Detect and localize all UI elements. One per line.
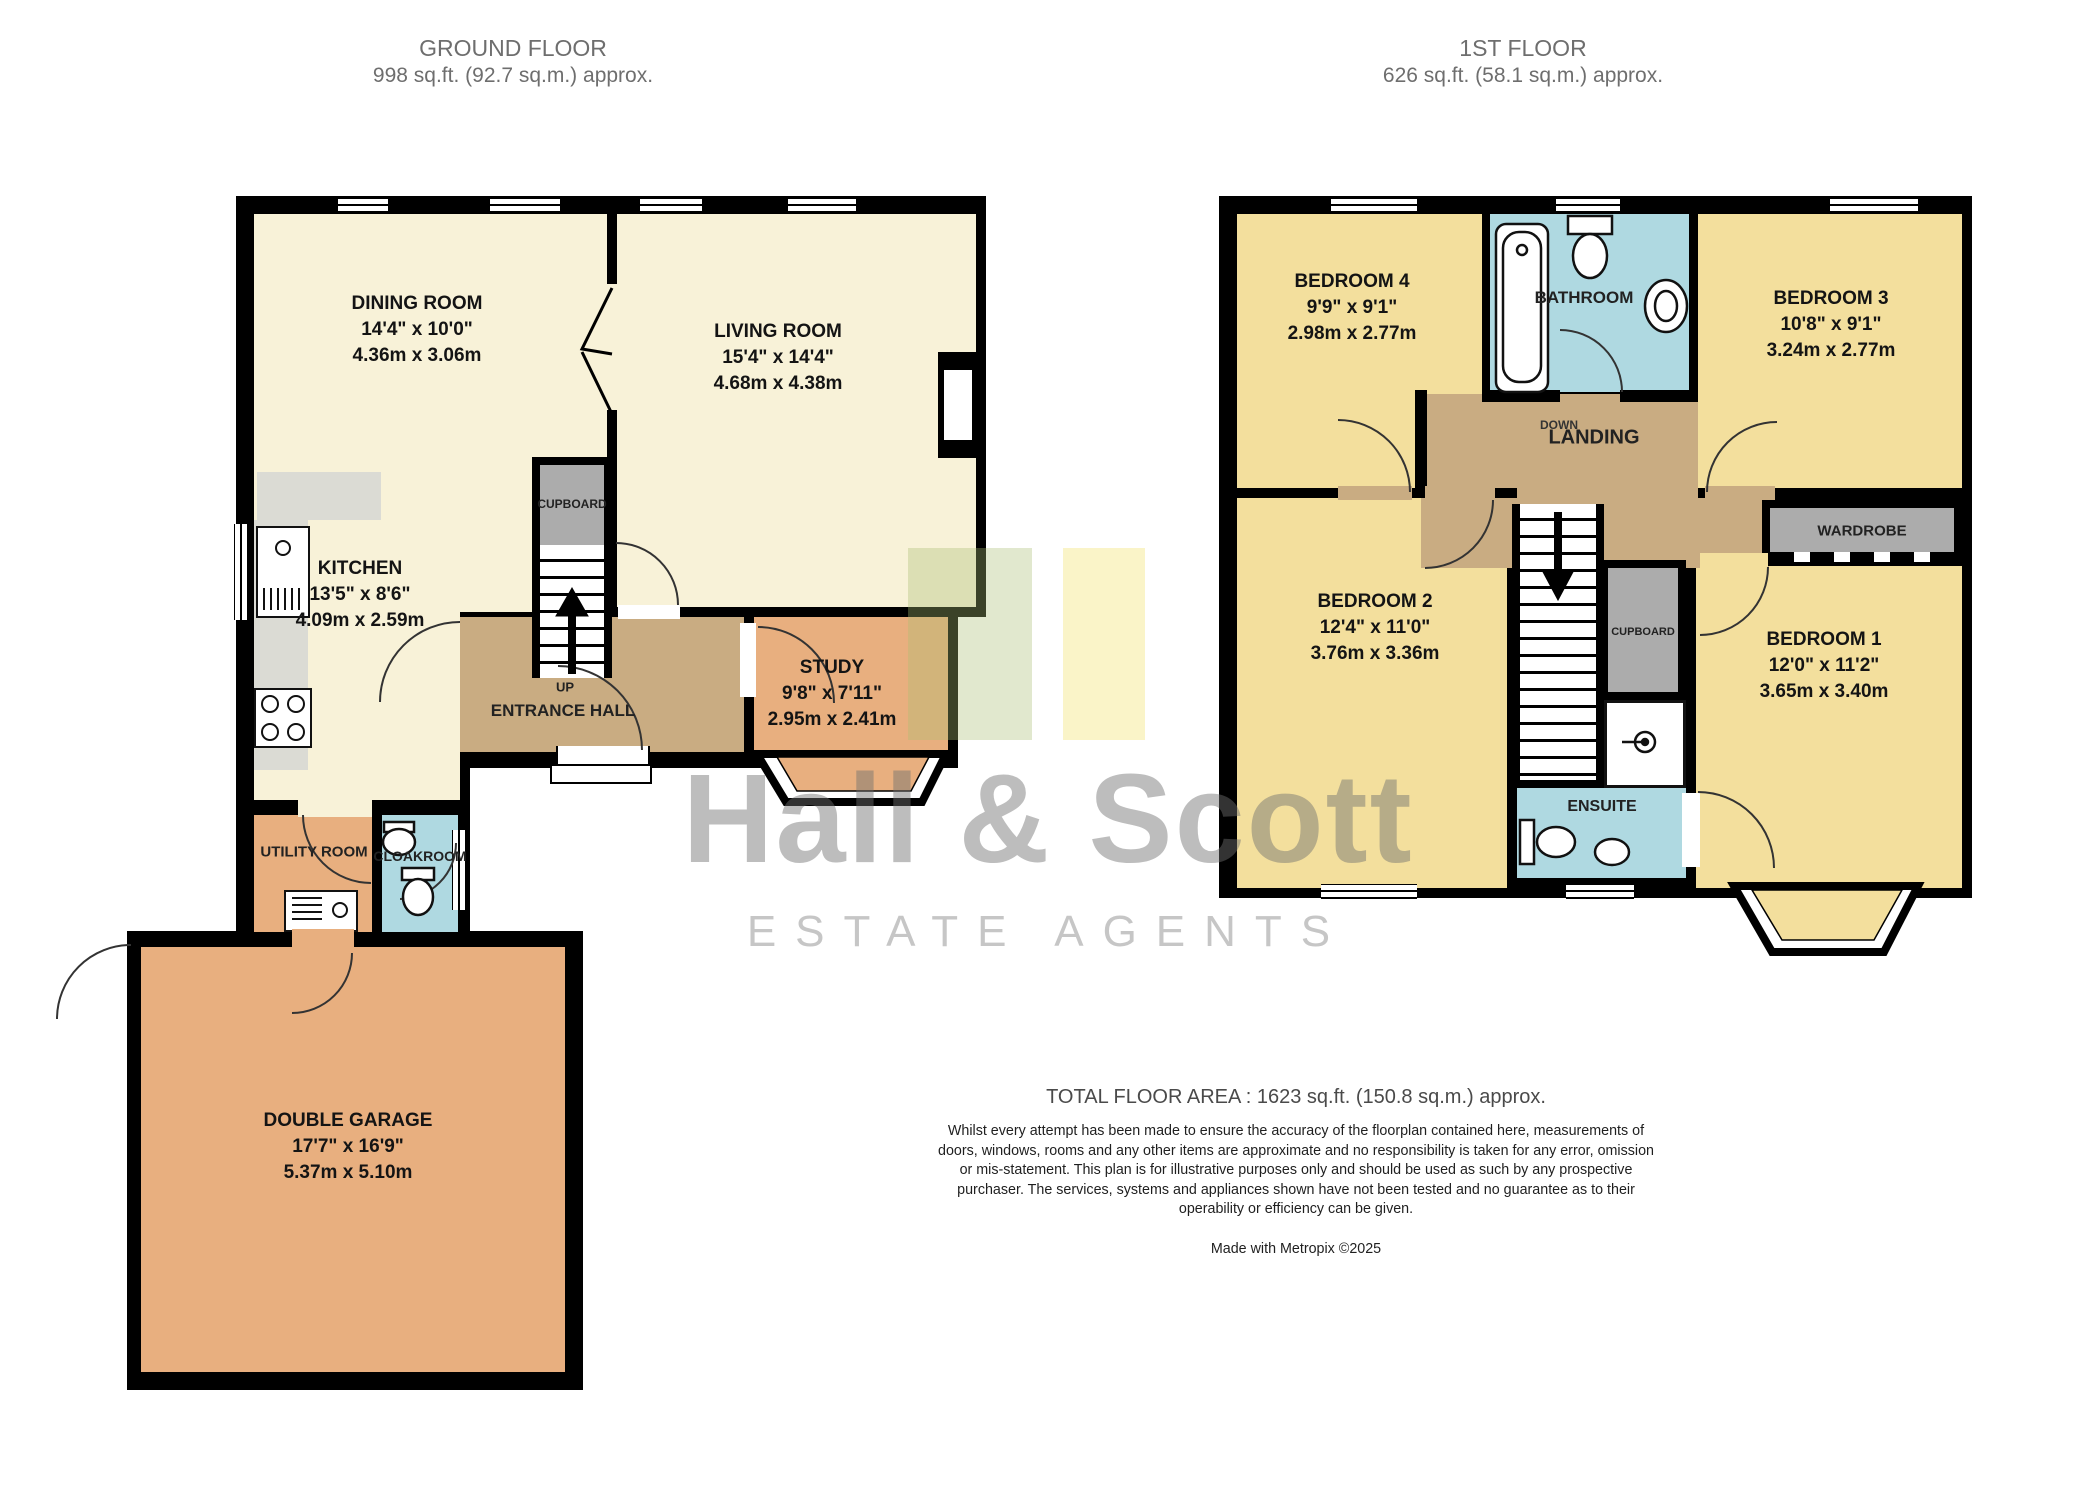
living-window-1 xyxy=(640,198,702,213)
bedroom-1 xyxy=(1696,565,1962,888)
ensuite-door-gap xyxy=(1682,793,1700,867)
garage-label: DOUBLE GARAGE 17'7" x 16'9" 5.37m x 5.10… xyxy=(264,1108,433,1186)
dining-window-1 xyxy=(338,198,388,213)
first-floor-header: 1ST FLOOR 626 sq.ft. (58.1 sq.m.) approx… xyxy=(1323,33,1723,89)
bathroom-wall-right xyxy=(1620,390,1698,402)
bed3-window xyxy=(1830,198,1918,213)
ground-floor-area: 998 sq.ft. (92.7 sq.m.) approx. xyxy=(313,63,713,89)
floorplan-page: { "colors": { "wall": "#000000", "recept… xyxy=(0,0,2095,1500)
living-window-2 xyxy=(788,198,856,213)
ground-floor-header: GROUND FLOOR 998 sq.ft. (92.7 sq.m.) app… xyxy=(313,33,713,89)
utility-worktop xyxy=(284,890,358,932)
utility-door-gap xyxy=(298,798,372,817)
shower xyxy=(1604,700,1686,788)
bathroom-label: BATHROOM xyxy=(1535,288,1634,308)
yellow-highlight-patch xyxy=(1063,548,1145,740)
bedroom4-label: BEDROOM 4 9'9" x 9'1" 2.98m x 2.77m xyxy=(1288,269,1417,347)
entrance-hall-label: ENTRANCE HALL xyxy=(491,701,636,721)
bedroom1-label: BEDROOM 1 12'0" x 11'2" 3.65m x 3.40m xyxy=(1760,627,1889,705)
living-room-label: LIVING ROOM 15'4" x 14'4" 4.68m x 4.38m xyxy=(714,319,843,397)
garage-outer-door-arc xyxy=(57,945,131,1019)
wardrobe-sliding-doors xyxy=(1770,552,1954,562)
bathroom-window xyxy=(1556,198,1620,213)
bed2-door-gap xyxy=(1425,486,1495,500)
ff-staircase xyxy=(1512,504,1604,788)
living-door-gap xyxy=(618,605,680,619)
green-highlight-patch xyxy=(908,548,1032,740)
bed4-door-gap xyxy=(1338,486,1412,500)
bed4-window xyxy=(1331,198,1417,213)
bed3-door-gap xyxy=(1705,486,1775,500)
kitchen-hob xyxy=(254,688,312,748)
cloakroom-window xyxy=(452,830,467,910)
first-floor-area: 626 sq.ft. (58.1 sq.m.) approx. xyxy=(1323,63,1723,89)
bed1-door-gap xyxy=(1700,553,1768,569)
ground-floor-title: GROUND FLOOR xyxy=(313,33,713,63)
study-door-gap xyxy=(740,623,756,697)
kitchen-label: KITCHEN 13'5" x 8'6" 4.09m x 2.59m xyxy=(296,556,425,634)
up-label: UP xyxy=(556,680,574,695)
bed2-wall-seg xyxy=(1495,488,1517,498)
fireplace-opening xyxy=(944,370,972,440)
utility-label: UTILITY ROOM xyxy=(260,844,367,861)
cloakroom-label: CLOAKROOM xyxy=(373,848,466,864)
kitchen-counter-top xyxy=(257,472,381,520)
total-floor-area: TOTAL FLOOR AREA : 1623 sq.ft. (150.8 sq… xyxy=(946,1086,1646,1109)
kitchen-window xyxy=(234,524,249,620)
ff-cupboard-label: CUPBOARD xyxy=(1611,626,1675,638)
watermark-brand: Hall & Scott xyxy=(548,756,1548,882)
landing-wall-jog xyxy=(1415,390,1427,498)
wardrobe-label: WARDROBE xyxy=(1817,523,1906,540)
gf-staircase xyxy=(532,545,612,678)
garage-door-gap xyxy=(292,929,354,953)
bedroom2-label: BEDROOM 2 12'4" x 11'0" 3.76m x 3.36m xyxy=(1311,589,1440,667)
bedroom3-label: BEDROOM 3 10'8" x 9'1" 3.24m x 2.77m xyxy=(1767,286,1896,364)
landing-label: LANDING xyxy=(1548,427,1639,450)
ensuite-window xyxy=(1566,884,1634,899)
watermark-tagline: ESTATE AGENTS xyxy=(698,908,1398,956)
credit: Made with Metropix ©2025 xyxy=(931,1241,1661,1257)
dining-living-opening xyxy=(605,284,619,410)
disclaimer: Whilst every attempt has been made to en… xyxy=(931,1122,1661,1220)
ensuite-label: ENSUITE xyxy=(1567,798,1636,816)
gf-cupboard-label: CUPBOARD xyxy=(537,497,606,511)
first-floor-title: 1ST FLOOR xyxy=(1323,33,1723,63)
study-label: STUDY 9'8" x 7'11" 2.95m x 2.41m xyxy=(768,655,897,733)
bathroom-wall-left xyxy=(1482,390,1560,402)
cloakroom xyxy=(382,815,458,932)
dining-window-2 xyxy=(490,198,560,213)
dining-room-label: DINING ROOM 14'4" x 10'0" 4.36m x 3.06m xyxy=(352,291,483,369)
